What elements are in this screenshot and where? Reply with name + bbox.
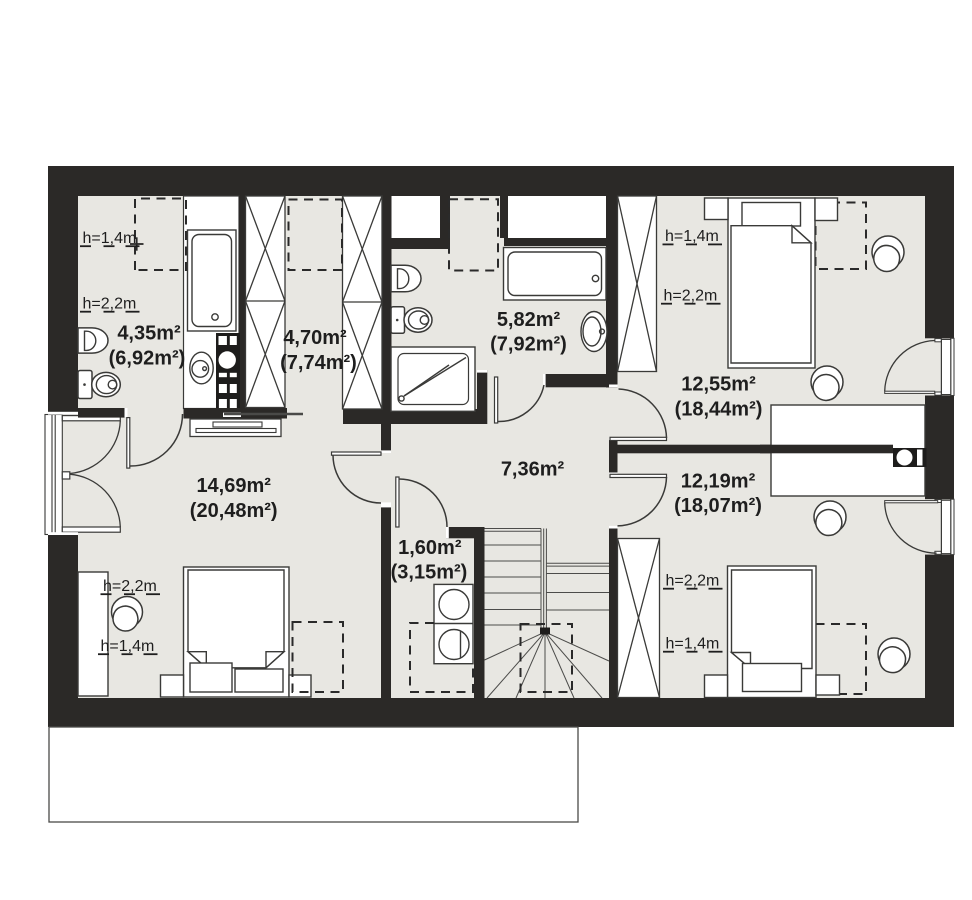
svg-text:4,35m²: 4,35m²	[117, 323, 181, 345]
svg-text:h=2,2m: h=2,2m	[103, 578, 157, 595]
svg-text:h=2,2m: h=2,2m	[664, 288, 718, 305]
svg-text:(18,07m²): (18,07m²)	[674, 495, 762, 517]
svg-text:h=1,4m: h=1,4m	[666, 636, 720, 653]
svg-text:h=2,2m: h=2,2m	[83, 296, 137, 313]
svg-text:14,69m²: 14,69m²	[196, 475, 271, 497]
svg-text:12,19m²: 12,19m²	[681, 471, 756, 493]
svg-text:(7,92m²): (7,92m²)	[490, 334, 567, 356]
svg-text:4,70m²: 4,70m²	[283, 327, 347, 349]
svg-text:h=1,4m: h=1,4m	[83, 230, 137, 247]
svg-text:(6,92m²): (6,92m²)	[109, 347, 186, 369]
svg-text:(20,48m²): (20,48m²)	[190, 500, 278, 522]
svg-text:h=1,4m: h=1,4m	[665, 228, 719, 245]
svg-text:(18,44m²): (18,44m²)	[675, 398, 763, 420]
svg-text:h=1,4m: h=1,4m	[101, 638, 155, 655]
svg-text:h=2,2m: h=2,2m	[666, 573, 720, 590]
svg-text:(3,15m²): (3,15m²)	[391, 562, 468, 584]
svg-text:1,60m²: 1,60m²	[398, 537, 462, 559]
svg-text:7,36m²: 7,36m²	[501, 458, 565, 480]
svg-text:(7,74m²): (7,74m²)	[280, 352, 357, 374]
svg-text:12,55m²: 12,55m²	[681, 374, 756, 396]
svg-text:5,82m²: 5,82m²	[497, 309, 561, 331]
